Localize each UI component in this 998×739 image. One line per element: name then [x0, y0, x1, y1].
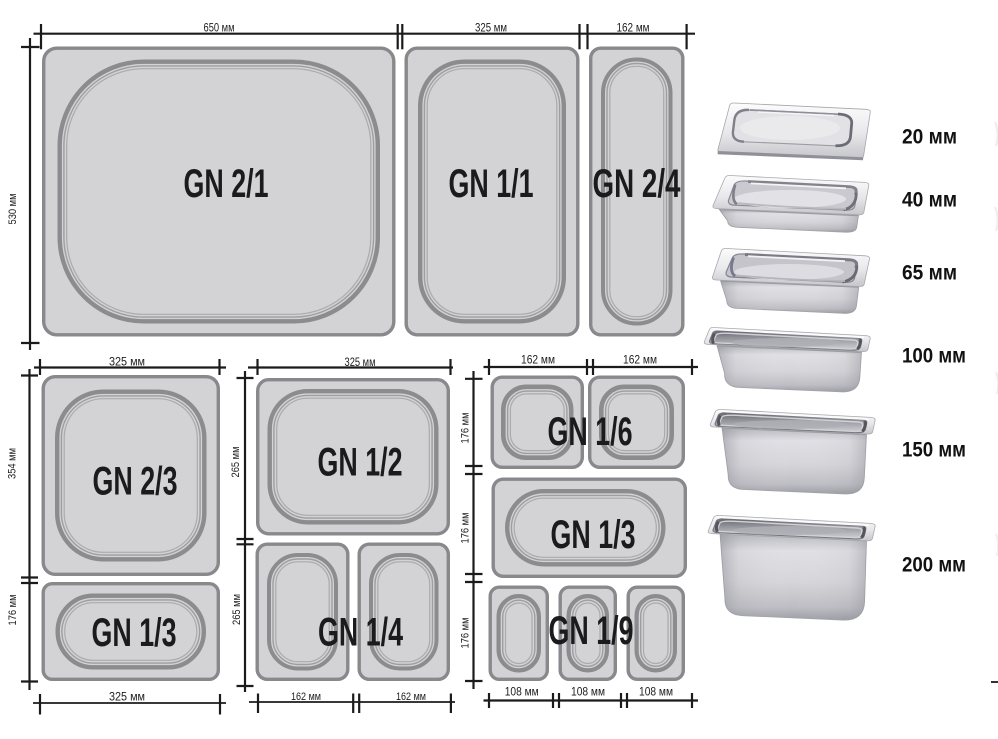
svg-text:GN 2/3: GN 2/3	[93, 460, 178, 504]
svg-text:GN 2/1: GN 2/1	[184, 162, 269, 206]
svg-text:325 мм: 325 мм	[109, 355, 145, 369]
svg-text:162 мм: 162 мм	[396, 691, 426, 703]
svg-text:162 мм: 162 мм	[521, 353, 555, 367]
svg-text:40 мм: 40 мм	[902, 189, 957, 212]
svg-text:325 мм: 325 мм	[109, 690, 145, 704]
svg-text:176 мм: 176 мм	[460, 413, 472, 444]
svg-text:100 мм: 100 мм	[902, 345, 966, 368]
svg-text:176 мм: 176 мм	[460, 513, 472, 544]
svg-text:265 мм: 265 мм	[231, 594, 243, 625]
svg-text:176 мм: 176 мм	[460, 618, 472, 649]
svg-text:GN 1/4: GN 1/4	[318, 611, 403, 655]
svg-text:GN 1/3: GN 1/3	[92, 611, 177, 655]
svg-text:GN 1/2: GN 1/2	[318, 441, 403, 485]
svg-text:650 мм: 650 мм	[204, 21, 235, 35]
svg-text:108 мм: 108 мм	[571, 685, 605, 699]
svg-text:162 мм: 162 мм	[617, 21, 650, 35]
svg-text:530 мм: 530 мм	[7, 194, 19, 225]
svg-text:325 мм: 325 мм	[345, 356, 376, 369]
svg-text:176 мм: 176 мм	[7, 595, 19, 626]
svg-text:GN 2/4: GN 2/4	[593, 162, 681, 206]
svg-text:65 мм: 65 мм	[902, 262, 957, 285]
svg-text:GN 1/9: GN 1/9	[549, 609, 634, 653]
svg-text:162 мм: 162 мм	[291, 691, 321, 703]
svg-text:GN 1/1: GN 1/1	[449, 162, 534, 206]
svg-text:200 мм: 200 мм	[902, 554, 966, 577]
svg-text:162 мм: 162 мм	[623, 353, 657, 367]
svg-text:265 мм: 265 мм	[230, 447, 242, 478]
svg-text:GN 1/6: GN 1/6	[548, 410, 633, 454]
svg-text:354 мм: 354 мм	[7, 448, 19, 479]
svg-text:325 мм: 325 мм	[475, 21, 507, 35]
svg-text:108 мм: 108 мм	[505, 685, 539, 699]
svg-text:108 мм: 108 мм	[639, 685, 673, 699]
svg-text:20 мм: 20 мм	[902, 126, 957, 149]
svg-text:150 мм: 150 мм	[902, 439, 966, 462]
svg-text:GN 1/3: GN 1/3	[551, 513, 636, 557]
